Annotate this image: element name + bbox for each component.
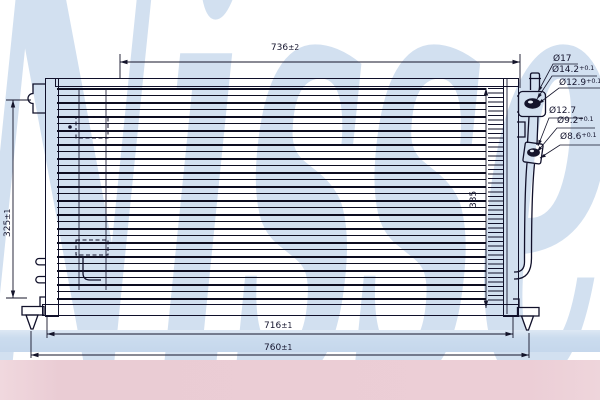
internal-bolt-mark xyxy=(68,125,72,129)
outlet-pipe-run xyxy=(514,163,535,279)
port-diameter: Ø8.6 xyxy=(560,132,581,142)
dimension-lines xyxy=(6,54,529,358)
port-label-d14-2: Ø14.2+0.1 xyxy=(552,64,594,75)
dimension-arrows xyxy=(11,60,529,357)
port-diameter: Ø12.9 xyxy=(559,78,586,88)
internal-pipe-bend xyxy=(83,256,101,280)
dimension-value: 760 xyxy=(264,343,281,353)
left-mounting-foot xyxy=(22,297,46,329)
dimension-label-bottom-mount-width: 716±1 xyxy=(264,321,292,331)
port-label-d8-6: Ø8.6+0.1 xyxy=(560,131,596,142)
condenser-technical-drawing: Nissens xyxy=(0,0,600,400)
dimension-value: 736 xyxy=(271,43,288,53)
internal-partition-box-upper xyxy=(76,117,108,138)
lower-fitting xyxy=(523,142,544,164)
right-side-tab xyxy=(517,122,525,137)
bottom-pink-strip xyxy=(0,360,600,400)
port-diameter: Ø14.2 xyxy=(552,65,579,75)
fitting-connector-tube xyxy=(528,117,539,146)
dimension-tolerance: ±1 xyxy=(3,209,12,220)
port-label-d17: Ø17 xyxy=(553,53,572,64)
port-tolerance: +0.1 xyxy=(579,64,594,72)
dimension-label-top-width: 736±2 xyxy=(250,43,320,53)
right-mounting-foot xyxy=(513,299,539,330)
dimension-tolerance: ±1 xyxy=(281,343,292,352)
dim-line-736 xyxy=(120,54,520,88)
port-diameter: Ø17 xyxy=(553,54,572,64)
dimension-label-core-height: 335 xyxy=(469,191,479,208)
internal-partition-box-lower xyxy=(76,240,108,255)
drawing-linework xyxy=(0,0,600,400)
dimension-label-overall-width: 760±1 xyxy=(264,343,292,353)
leader-d129 xyxy=(538,88,600,104)
dimension-label-left-height: 325±1 xyxy=(3,209,13,237)
dim-line-325 xyxy=(6,100,31,298)
port-label-d9-2: Ø9.2+0.1 xyxy=(557,115,593,126)
leader-d86 xyxy=(540,145,600,158)
port-tolerance: +0.1 xyxy=(578,115,593,123)
part-details xyxy=(22,73,546,330)
dimension-tolerance: ±1 xyxy=(281,321,292,330)
port-label-d12-9: Ø12.9+0.1 xyxy=(559,77,600,88)
port-tolerance: +0.1 xyxy=(586,77,600,85)
lower-port xyxy=(527,148,540,157)
top-left-mounting-bracket xyxy=(28,84,46,113)
dimension-value: 335 xyxy=(469,191,479,208)
port-diameter: Ø9.2 xyxy=(557,116,578,126)
left-pipe-stubs xyxy=(36,259,46,283)
dimension-value: 716 xyxy=(264,321,281,331)
dimension-tolerance: ±2 xyxy=(288,43,299,52)
port-tolerance: +0.1 xyxy=(581,131,596,139)
dimension-value: 325 xyxy=(3,220,13,237)
